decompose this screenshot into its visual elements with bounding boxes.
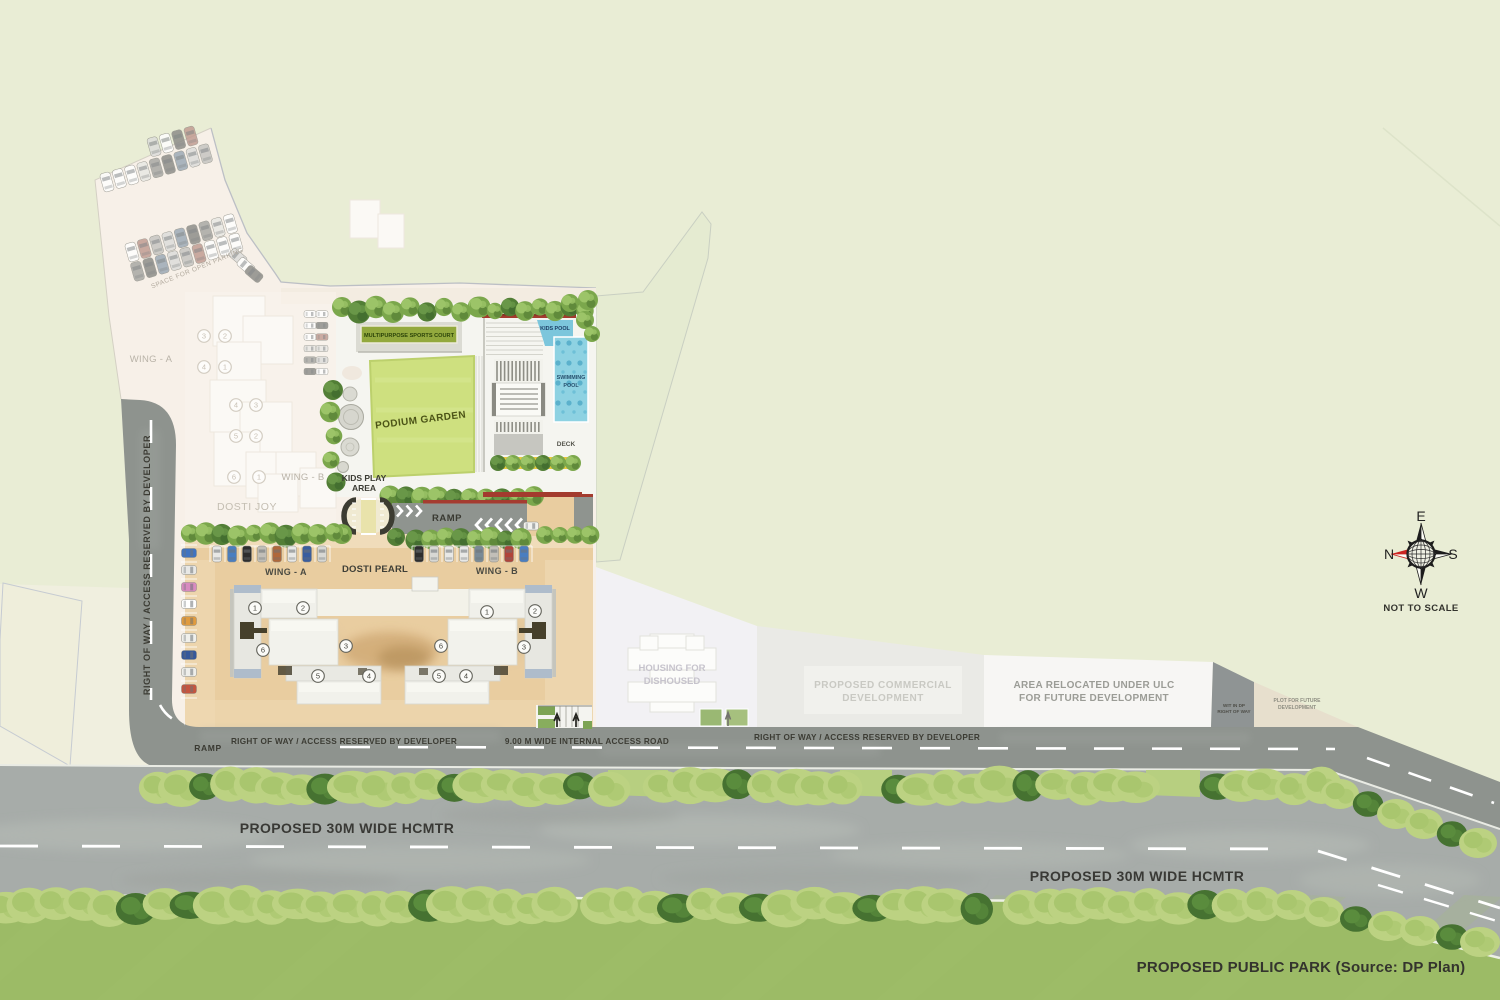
svg-text:DOSTI JOY: DOSTI JOY [217, 501, 277, 513]
svg-text:6: 6 [261, 645, 265, 654]
svg-text:3: 3 [202, 331, 206, 340]
svg-text:AREA RELOCATED UNDER ULC: AREA RELOCATED UNDER ULC [1013, 680, 1174, 691]
svg-text:2: 2 [254, 431, 258, 440]
svg-text:RIGHT OF WAY: RIGHT OF WAY [1217, 709, 1250, 714]
svg-text:SWIMMING: SWIMMING [557, 375, 586, 381]
svg-text:E: E [1416, 508, 1425, 524]
svg-text:6: 6 [232, 472, 236, 481]
svg-text:RIGHT OF WAY / ACCESS RESERVED: RIGHT OF WAY / ACCESS RESERVED BY DEVELO… [231, 737, 457, 746]
svg-text:HOUSING FOR: HOUSING FOR [638, 663, 705, 674]
svg-text:RIGHT OF WAY / ACCESS RESERVED: RIGHT OF WAY / ACCESS RESERVED BY DEVELO… [142, 435, 152, 695]
svg-text:PROPOSED 30M WIDE HCMTR: PROPOSED 30M WIDE HCMTR [1030, 868, 1245, 884]
svg-text:4: 4 [464, 671, 468, 680]
svg-text:S: S [1448, 546, 1457, 562]
svg-text:AREA: AREA [352, 483, 376, 493]
svg-text:1: 1 [223, 362, 227, 371]
svg-text:RIGHT OF WAY / ACCESS RESERVED: RIGHT OF WAY / ACCESS RESERVED BY DEVELO… [754, 733, 980, 742]
svg-text:NOT TO SCALE: NOT TO SCALE [1383, 603, 1458, 614]
svg-text:1: 1 [253, 603, 257, 612]
svg-text:FOR FUTURE DEVELOPMENT: FOR FUTURE DEVELOPMENT [1019, 693, 1169, 704]
svg-text:4: 4 [202, 362, 206, 371]
svg-text:N: N [1384, 546, 1394, 562]
svg-text:PROPOSED PUBLIC PARK (Source:: PROPOSED PUBLIC PARK (Source: DP Plan) [1137, 959, 1466, 976]
svg-text:WING - A: WING - A [130, 354, 173, 365]
svg-text:1: 1 [257, 472, 261, 481]
svg-text:RAMP: RAMP [194, 743, 221, 753]
svg-text:6: 6 [439, 641, 443, 650]
svg-text:WIT IN DP: WIT IN DP [1223, 703, 1245, 708]
svg-text:DISHOUSED: DISHOUSED [644, 676, 701, 687]
svg-text:DOSTI PEARL: DOSTI PEARL [342, 564, 408, 575]
svg-text:KIDS PLAY: KIDS PLAY [342, 473, 387, 483]
svg-text:DECK: DECK [557, 441, 576, 448]
svg-text:3: 3 [254, 400, 258, 409]
svg-text:RAMP: RAMP [432, 513, 462, 524]
svg-text:4: 4 [234, 400, 238, 409]
svg-text:PROPOSED 30M WIDE HCMTR: PROPOSED 30M WIDE HCMTR [240, 820, 455, 836]
svg-text:9.00 M WIDE INTERNAL ACCESS RO: 9.00 M WIDE INTERNAL ACCESS ROAD [505, 737, 669, 746]
svg-text:4: 4 [367, 671, 371, 680]
svg-text:2: 2 [533, 606, 537, 615]
svg-text:2: 2 [301, 603, 305, 612]
svg-text:PROPOSED COMMERCIAL: PROPOSED COMMERCIAL [814, 680, 952, 691]
svg-text:3: 3 [522, 642, 526, 651]
svg-text:DEVELOPMENT: DEVELOPMENT [842, 693, 924, 704]
svg-text:POOL: POOL [563, 383, 579, 389]
svg-text:5: 5 [234, 431, 238, 440]
svg-text:3: 3 [344, 641, 348, 650]
svg-text:DEVELOPMENT: DEVELOPMENT [1278, 705, 1316, 711]
svg-text:5: 5 [316, 671, 320, 680]
svg-text:W: W [1414, 585, 1428, 601]
svg-text:KIDS POOL: KIDS POOL [540, 326, 570, 332]
svg-text:WING - A: WING - A [265, 567, 307, 577]
svg-text:WING - B: WING - B [281, 472, 324, 483]
svg-text:PLOT FOR FUTURE: PLOT FOR FUTURE [1274, 698, 1322, 704]
svg-text:1: 1 [485, 607, 489, 616]
svg-text:MULTIPURPOSE SPORTS COURT: MULTIPURPOSE SPORTS COURT [364, 333, 455, 339]
svg-text:2: 2 [223, 331, 227, 340]
svg-text:5: 5 [437, 671, 441, 680]
svg-text:WING - B: WING - B [476, 566, 518, 576]
